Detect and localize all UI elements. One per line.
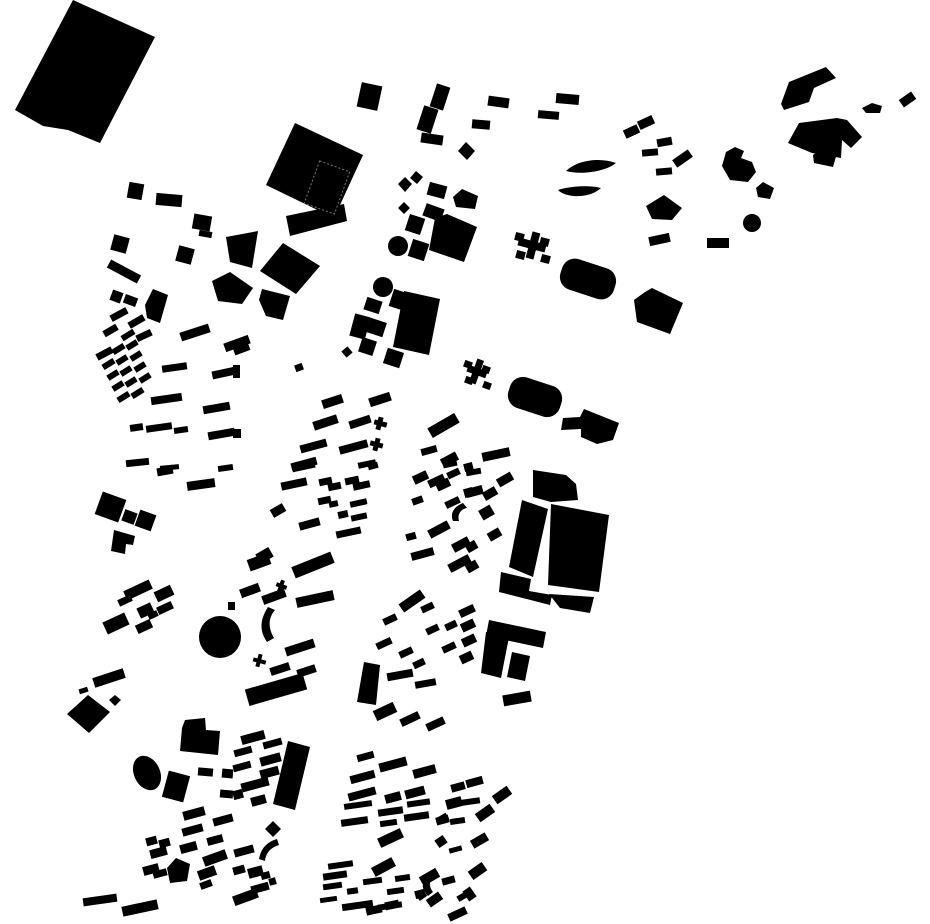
building-footprint — [642, 148, 659, 156]
building-footprint — [707, 238, 729, 248]
building-footprint-round — [199, 616, 241, 658]
building-footprint — [472, 119, 491, 130]
building-footprint — [222, 769, 234, 779]
building-footprint-round — [373, 277, 393, 297]
building-footprint — [548, 504, 609, 592]
building-footprint — [198, 767, 214, 776]
building-footprint — [127, 182, 145, 200]
building-footprint — [228, 602, 235, 610]
building-footprint-round — [743, 214, 761, 232]
building-footprint — [656, 167, 673, 175]
building-footprint — [156, 193, 183, 207]
building-footprint — [192, 214, 212, 232]
building-footprint — [556, 93, 580, 105]
building-footprint — [220, 789, 234, 798]
building-footprint — [233, 429, 241, 438]
figure-ground-map — [0, 0, 930, 924]
building-footprint — [233, 365, 240, 378]
building-footprint-round — [388, 236, 408, 256]
